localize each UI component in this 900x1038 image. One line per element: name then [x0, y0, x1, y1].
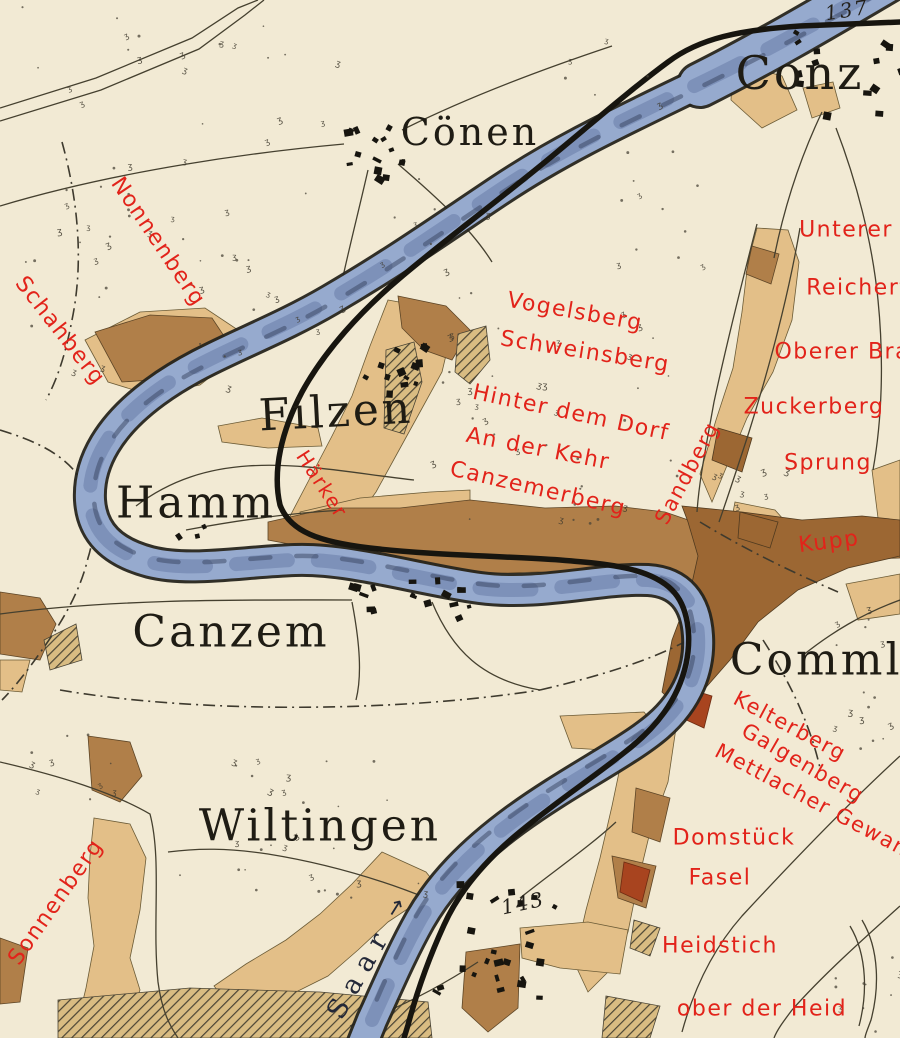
scrub-symbol: ʒ — [320, 118, 326, 128]
scrub-dot — [620, 199, 623, 202]
building — [517, 980, 527, 988]
scrub-dot — [863, 691, 865, 693]
scrub-dot — [255, 889, 258, 892]
building — [409, 580, 417, 585]
scrub-symbol: ʒ — [838, 1004, 843, 1014]
scrub-symbol: ʒ — [238, 347, 243, 356]
scrub-dot — [469, 518, 471, 520]
scrub-dot — [882, 738, 884, 740]
scrub-symbol: ʒ — [880, 638, 886, 649]
scrub-dot — [30, 325, 33, 328]
scrub-dot — [497, 328, 499, 330]
scrub-symbol: ʒ — [429, 458, 438, 470]
scrub-symbol: ʒ — [254, 756, 261, 766]
building — [423, 599, 432, 607]
building — [455, 614, 464, 622]
scrub-symbol: ʒ — [104, 239, 113, 251]
scrub-dot — [874, 1030, 877, 1033]
scrub-symbol: ʒ — [553, 407, 561, 417]
scrub-dot — [302, 801, 305, 804]
building — [372, 137, 379, 144]
scrub-symbol: ʒ — [265, 289, 272, 299]
scrub-dot — [33, 259, 36, 262]
scrub-dot — [200, 260, 202, 262]
scrub-dot — [199, 343, 201, 345]
scrub-dot — [263, 25, 265, 27]
scrub-symbol: ʒ — [48, 757, 55, 768]
scrub-dot — [110, 763, 112, 765]
scrub-dot — [646, 75, 649, 78]
scrub-symbol: ʒ — [198, 284, 205, 295]
scrub-dot — [317, 890, 320, 893]
scrub-symbol: ʒ — [63, 200, 71, 210]
scrub-symbol: ʒ — [263, 136, 271, 147]
scrub-symbol: ʒ — [456, 395, 462, 405]
building — [863, 90, 872, 96]
scrub-dot — [386, 799, 388, 801]
scrub-dot — [373, 760, 376, 763]
scrub-symbol: ʒ — [286, 772, 292, 783]
scrub-dot — [21, 6, 23, 8]
scrub-dot — [116, 17, 118, 19]
building — [536, 995, 543, 999]
scrub-dot — [87, 734, 90, 737]
scrub-dot — [545, 444, 547, 446]
building — [374, 166, 383, 175]
building — [795, 80, 804, 87]
scrub-dot — [270, 844, 272, 846]
scrub-dot — [267, 57, 269, 59]
scrub-dot — [672, 150, 675, 153]
scrub-dot — [668, 375, 670, 377]
scrub-symbol: ʒ — [783, 466, 792, 478]
building — [823, 111, 832, 120]
scrub-symbol: ʒ — [28, 759, 37, 770]
scrub-dot — [89, 798, 91, 800]
scrub-dot — [79, 241, 81, 243]
building — [354, 151, 361, 158]
scrub-symbol: ʒ — [235, 838, 241, 847]
building — [385, 124, 392, 132]
scrub-dot — [491, 375, 493, 377]
scrub-symbol: ʒ — [481, 415, 490, 426]
scrub-dot — [868, 619, 870, 621]
scrub-dot — [872, 740, 875, 743]
scrub-dot — [696, 184, 699, 187]
scrub-symbol: ʒ — [619, 309, 628, 319]
scrub-symbol: ʒ — [275, 114, 284, 126]
scrub-dot — [633, 180, 635, 182]
scrub-symbol: ʒ — [636, 322, 644, 333]
scrub-dot — [221, 254, 224, 257]
building — [467, 604, 472, 609]
scrub-dot — [891, 956, 894, 959]
scrub-symbol: ʒ — [334, 59, 342, 70]
scrub-dot — [528, 303, 530, 305]
scrub-dot — [890, 994, 892, 996]
scrub-dot — [324, 889, 326, 891]
scrub-symbol: ʒ — [833, 618, 842, 628]
scrub-dot — [251, 775, 254, 778]
scrub-dot — [66, 735, 68, 737]
building — [386, 390, 393, 398]
scrub-dot — [100, 186, 102, 188]
scrub-dot — [873, 696, 876, 699]
scrub-dot — [635, 248, 637, 250]
scrub-symbol: ʒ — [224, 206, 231, 217]
building — [813, 48, 820, 54]
scrub-dot — [572, 519, 574, 521]
scrub-symbol: ʒ — [616, 260, 623, 270]
building — [466, 892, 474, 900]
scrub-symbol: ʒ — [147, 228, 154, 239]
scrub-symbol: ʒ — [78, 98, 86, 108]
scrub-symbol: ʒ — [71, 366, 79, 377]
scrub-symbol: ʒ — [626, 351, 634, 361]
scrub-symbol: ʒ — [315, 326, 320, 335]
scrub-symbol: ʒ — [635, 190, 643, 200]
scrub-dot — [25, 261, 27, 263]
building — [380, 136, 387, 142]
building — [372, 156, 382, 163]
scrub-symbol: ʒ — [56, 226, 63, 238]
building — [886, 44, 893, 51]
scrub-symbol: ʒ — [542, 380, 548, 391]
scrub-dot — [637, 387, 639, 389]
map-canvas: ʒʒʒʒʒʒʒʒʒʒʒʒʒʒʒʒʒʒʒʒʒʒʒʒʒʒʒʒʒʒʒʒʒʒʒʒʒʒʒʒ… — [0, 0, 900, 1038]
building — [175, 533, 183, 541]
scrub-symbol: ʒ — [515, 445, 521, 456]
scrub-dot — [224, 355, 226, 357]
scrub-dot — [835, 977, 837, 979]
scrub-dot — [597, 518, 600, 521]
scrub-symbol: ʒ — [568, 56, 573, 65]
scrub-symbol: ʒ — [442, 265, 451, 277]
scrub-dot — [138, 35, 141, 38]
scrub-dot — [113, 167, 116, 170]
scrub-dot — [573, 503, 576, 506]
scrub-dot — [333, 848, 335, 850]
building — [436, 984, 444, 991]
scrub-dot — [326, 760, 328, 762]
scrub-symbol: ʒ — [832, 723, 839, 733]
scrub-dot — [493, 433, 495, 435]
scrub-dot — [652, 337, 654, 339]
scrub-symbol: ʒ — [485, 211, 491, 222]
scrub-symbol: ʒ — [232, 252, 237, 261]
scrub-symbol: ʒ — [474, 401, 479, 411]
scrub-dot — [182, 238, 184, 240]
scrub-symbol: ʒ — [266, 786, 275, 797]
building — [508, 889, 515, 896]
scrub-symbol: ʒ — [739, 488, 746, 498]
building — [359, 592, 369, 598]
scrub-dot — [867, 706, 870, 709]
scrub-symbol: ʒ — [181, 65, 189, 76]
scrub-symbol: ʒ — [280, 787, 287, 797]
historical-saar-wine-map: { "map_type": "historical topographic wi… — [0, 0, 900, 1038]
scrub-dot — [862, 1007, 864, 1009]
scrub-dot — [864, 626, 866, 628]
scrub-dot — [834, 985, 837, 988]
scrub-dot — [336, 893, 339, 896]
scrub-dot — [576, 457, 579, 460]
scrub-symbol: ʒ — [273, 294, 280, 305]
building — [490, 896, 500, 904]
scrub-dot — [859, 747, 862, 750]
scrub-dot — [623, 419, 626, 422]
scrub-dot — [459, 297, 461, 299]
scrub-symbol: ʒ — [698, 261, 706, 271]
building — [195, 533, 200, 538]
scrub-dot — [676, 475, 679, 478]
scrub-symbol: ʒ — [886, 720, 895, 731]
scrub-dot — [219, 43, 222, 46]
scrub-symbol: ʒ — [230, 757, 239, 768]
scrub-dot — [127, 49, 129, 51]
scrub-dot — [394, 216, 396, 218]
scrub-dot — [862, 982, 865, 985]
scrub-symbol: ʒ — [127, 162, 133, 172]
scrub-symbol: ʒ — [859, 715, 865, 725]
scrub-dot — [252, 308, 255, 311]
building — [460, 965, 466, 972]
scrub-dot — [442, 381, 445, 384]
scrub-dot — [109, 235, 111, 237]
scrub-dot — [244, 869, 246, 871]
building — [467, 927, 476, 935]
scrub-dot — [865, 984, 867, 986]
scrub-dot — [581, 485, 583, 487]
scrub-dot — [579, 488, 581, 490]
map-base-art: ʒʒʒʒʒʒʒʒʒʒʒʒʒʒʒʒʒʒʒʒʒʒʒʒʒʒʒʒʒʒʒʒʒʒʒʒʒʒʒʒ… — [0, 0, 900, 1038]
scrub-symbol: ʒ — [763, 491, 769, 501]
scrub-symbol: ʒ — [225, 382, 234, 394]
building — [518, 900, 525, 906]
scrub-dot — [127, 208, 130, 211]
scrub-dot — [65, 189, 67, 191]
scrub-dot — [37, 67, 39, 69]
building — [795, 70, 803, 78]
building — [457, 587, 461, 591]
scrub-symbol: ʒ — [412, 219, 418, 229]
scrub-dot — [127, 193, 130, 196]
scrub-dot — [836, 644, 838, 646]
scrub-symbol: ʒ — [136, 55, 143, 66]
scrub-dot — [30, 751, 33, 754]
scrub-dot — [471, 417, 473, 419]
scrub-dot — [260, 848, 263, 851]
scrub-symbol: ʒ — [232, 40, 239, 50]
building — [201, 524, 207, 530]
building — [552, 904, 558, 910]
scrub-symbol: ʒ — [86, 223, 90, 232]
scrub-dot — [418, 178, 420, 180]
scrub-symbol: ʒ — [356, 878, 361, 889]
scrub-symbol: ʒ — [307, 870, 315, 881]
building — [875, 111, 883, 117]
scrub-dot — [470, 292, 472, 294]
scrub-symbol: ʒ — [245, 263, 251, 274]
scrub-dot — [684, 230, 687, 233]
scrub-symbol: ʒ — [92, 254, 99, 265]
scrub-dot — [564, 77, 567, 80]
scrub-symbol: ʒ — [759, 466, 768, 478]
scrub-dot — [594, 94, 596, 96]
scrub-dot — [338, 806, 340, 808]
scrub-dot — [105, 287, 108, 290]
scrub-dot — [434, 208, 436, 210]
scrub-dot — [98, 296, 100, 298]
scrub-symbol: ʒ — [122, 31, 130, 41]
scrub-dot — [176, 265, 178, 267]
scrub-dot — [677, 256, 680, 259]
scrub-dot — [128, 215, 131, 218]
scrub-dot — [626, 151, 629, 154]
building — [536, 958, 545, 967]
scrub-symbol: ʒ — [35, 787, 42, 796]
scrub-dot — [418, 883, 420, 885]
building — [531, 895, 537, 900]
building — [873, 58, 880, 64]
scrub-dot — [448, 371, 450, 373]
scrub-symbol: ʒ — [170, 214, 175, 223]
scrub-dot — [202, 123, 204, 125]
scrub-dot — [661, 208, 663, 210]
scrub-symbol: ʒ — [467, 386, 473, 396]
scrub-symbol: ʒ — [604, 36, 610, 46]
scrub-dot — [589, 522, 592, 525]
building — [346, 162, 352, 166]
building — [388, 147, 394, 152]
scrub-dot — [305, 193, 307, 195]
scrub-symbol: ʒ — [282, 841, 290, 852]
scrub-dot — [179, 874, 181, 876]
scrub-symbol: ʒ — [292, 831, 301, 842]
scrub-symbol: ʒ — [182, 157, 189, 167]
building — [435, 577, 441, 584]
building — [811, 59, 819, 67]
building — [416, 359, 424, 367]
scrub-symbol: ʒ — [556, 338, 561, 347]
scrub-dot — [237, 868, 240, 871]
building — [456, 881, 464, 888]
scrub-dot — [350, 896, 352, 898]
scrub-symbol: ʒ — [847, 707, 854, 719]
scrub-dot — [190, 283, 193, 286]
scrub-dot — [284, 54, 286, 56]
scrub-dot — [247, 259, 249, 261]
scrub-dot — [430, 243, 432, 245]
building — [449, 601, 459, 607]
scrub-dot — [670, 460, 672, 462]
